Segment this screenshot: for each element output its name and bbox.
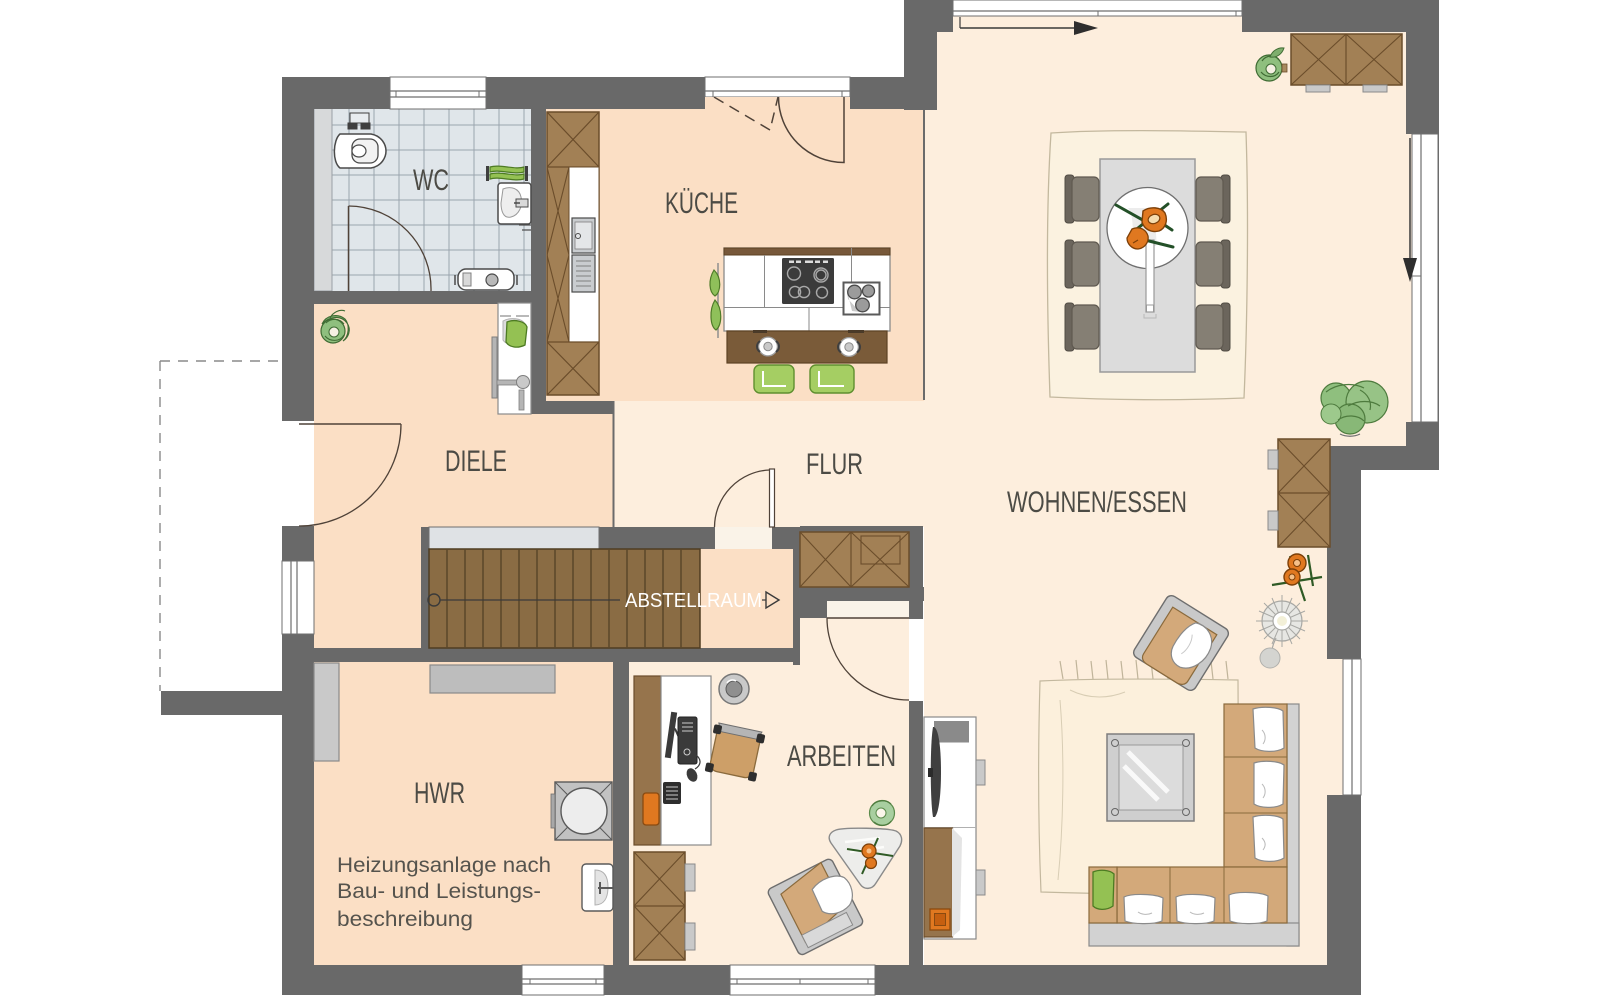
svg-text:ABSTELLRAUM: ABSTELLRAUM — [625, 590, 762, 612]
svg-text:WC: WC — [413, 164, 449, 197]
svg-text:DIELE: DIELE — [445, 445, 507, 478]
svg-text:KÜCHE: KÜCHE — [665, 187, 738, 220]
svg-text:WOHNEN/ESSEN: WOHNEN/ESSEN — [1007, 486, 1187, 519]
svg-text:HWR: HWR — [414, 777, 465, 810]
svg-text:Bau- und Leistungs-: Bau- und Leistungs- — [337, 880, 541, 903]
svg-text:Heizungsanlage nach: Heizungsanlage nach — [337, 854, 551, 877]
svg-text:ARBEITEN: ARBEITEN — [787, 740, 896, 773]
svg-text:FLUR: FLUR — [806, 448, 863, 481]
svg-text:beschreibung: beschreibung — [337, 908, 473, 931]
